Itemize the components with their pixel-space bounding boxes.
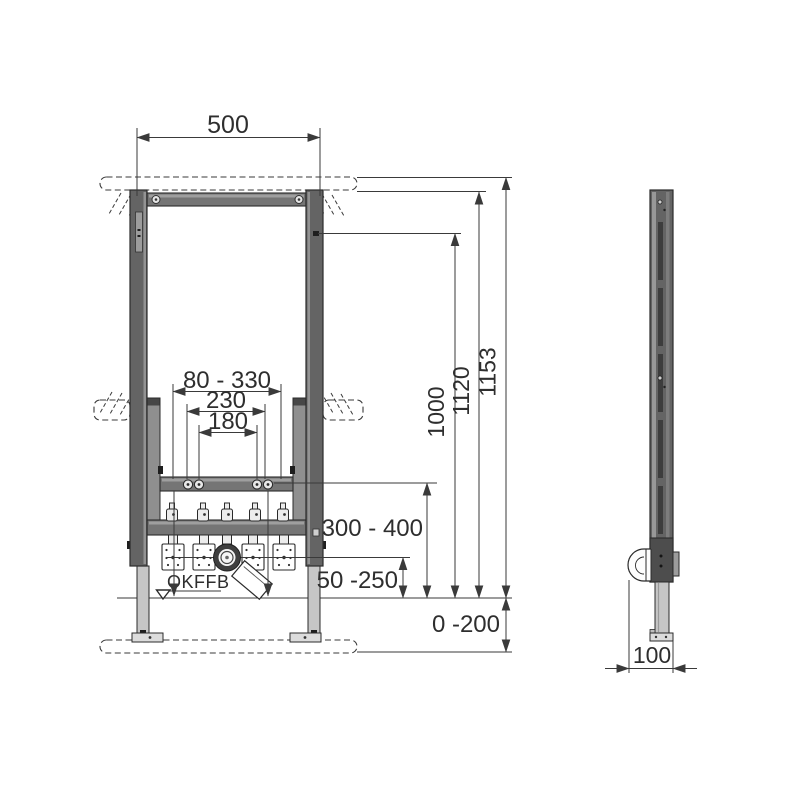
side-tab [673,552,679,576]
dim-300-400-label: 300 - 400 [322,515,423,542]
side-view: 100 [605,190,697,673]
inner-rail-right [293,398,306,532]
dim-1120-label: 1120 [448,366,474,415]
dim-0-200-label: 0 -200 [432,611,500,638]
pipe-clamps [167,503,289,521]
bidet-module-technical-drawing: OKFFB 500 80 - 330 230 180 [0,0,800,800]
front-view: OKFFB 500 80 - 330 230 180 [94,111,512,653]
wall-fixing-band-mid-right [321,392,363,420]
dimension-100: 100 [605,580,697,673]
dimension-0-200: 0 -200 [432,598,506,652]
dim-1153-label: 1153 [475,347,501,396]
profile-leg [650,582,673,641]
okffb-label: OKFFB [167,572,230,592]
wall-fixing-band-mid-left [94,392,132,420]
floor-level-marker: OKFFB [157,572,230,599]
profile-rail [650,190,679,582]
dim-50-250-label: 50 -250 [317,567,398,594]
connection-block [650,538,673,582]
dim-1000-label: 1000 [423,386,449,437]
inner-rail-left [147,398,160,532]
drain-pipe-angled [232,561,272,599]
dim-500-label: 500 [207,111,249,139]
connector-straps [169,535,289,544]
dim-180-label: 180 [208,408,248,435]
water-elbow [628,549,651,581]
dim-100-label: 100 [633,642,671,668]
adjustment-slot [136,212,143,252]
dimension-180: 180 [199,408,257,479]
